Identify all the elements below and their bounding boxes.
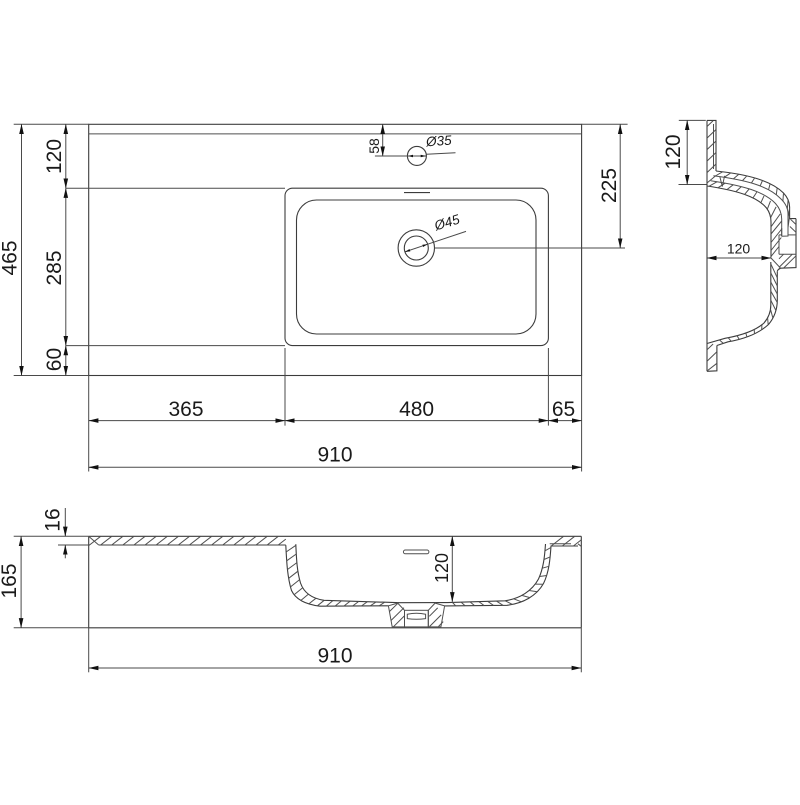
svg-text:120: 120 bbox=[432, 553, 452, 583]
svg-text:465: 465 bbox=[0, 240, 22, 275]
svg-text:16: 16 bbox=[42, 508, 65, 531]
svg-text:285: 285 bbox=[43, 250, 66, 285]
svg-text:120: 120 bbox=[43, 139, 66, 174]
svg-text:65: 65 bbox=[552, 398, 575, 421]
svg-text:225: 225 bbox=[598, 168, 621, 203]
svg-text:910: 910 bbox=[317, 443, 352, 466]
svg-text:120: 120 bbox=[727, 241, 751, 257]
svg-text:58: 58 bbox=[366, 138, 382, 154]
svg-text:165: 165 bbox=[0, 563, 21, 598]
svg-text:120: 120 bbox=[662, 134, 685, 169]
svg-text:910: 910 bbox=[317, 645, 352, 668]
svg-text:Ø35: Ø35 bbox=[425, 133, 453, 150]
svg-text:365: 365 bbox=[168, 398, 203, 421]
svg-text:480: 480 bbox=[399, 398, 434, 421]
svg-text:60: 60 bbox=[43, 348, 66, 371]
